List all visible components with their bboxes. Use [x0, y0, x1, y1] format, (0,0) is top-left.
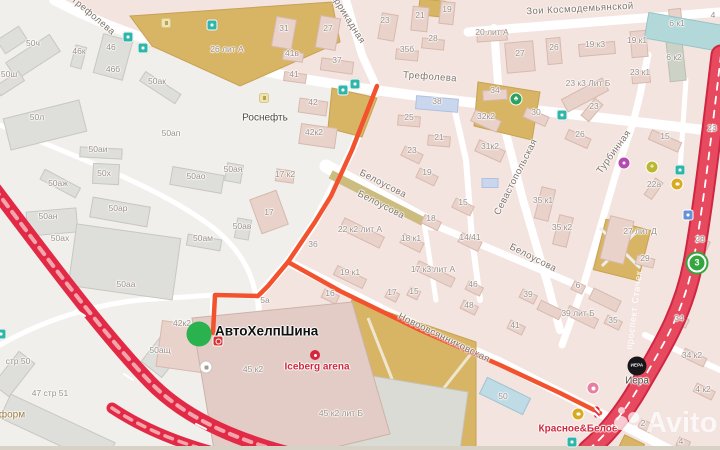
transit-stop-icon[interactable] [0, 329, 7, 340]
avito-logo-icon [612, 406, 642, 440]
transit-stop-icon[interactable] [138, 43, 149, 54]
park-tree-icon[interactable]: ♣ [510, 93, 523, 106]
poi-icons-layer: ♣+3ИЕРА [0, 0, 720, 450]
transit-stop-icon[interactable] [338, 85, 349, 96]
iera-logo-badge[interactable]: ИЕРА [628, 357, 647, 376]
fuel-station-icon[interactable] [259, 93, 269, 103]
store-cart-icon[interactable] [572, 408, 585, 421]
transit-stop-icon[interactable] [207, 20, 218, 31]
transit-stop-icon[interactable] [350, 79, 361, 90]
transit-route-badge[interactable]: 3 [688, 254, 707, 273]
transit-stop-icon[interactable] [123, 32, 134, 43]
transit-stop-icon[interactable] [675, 165, 686, 176]
transit-stop-icon[interactable] [567, 437, 578, 448]
origin-label: АвтоХелпШина [215, 324, 318, 339]
iceberg-arena-icon[interactable] [310, 350, 320, 360]
store-cart-icon[interactable] [671, 178, 684, 191]
route-end-marker[interactable] [595, 407, 600, 418]
avito-watermark: Avito [612, 406, 717, 440]
fuel-station-icon[interactable] [161, 18, 171, 28]
avito-watermark-text: Avito [646, 407, 717, 440]
map-canvas[interactable]: 50ч46к4646б50ак50ш50л26 лит А50ап50аи50х… [0, 0, 720, 450]
poi-pink-icon[interactable] [587, 382, 600, 395]
poi-white-icon[interactable] [200, 361, 213, 374]
pharmacy-cross-icon[interactable]: + [646, 161, 659, 174]
transit-stop-icon[interactable] [557, 110, 568, 121]
origin-marker[interactable] [187, 322, 212, 347]
poi-purple-icon[interactable] [618, 157, 631, 170]
transit-blue-icon[interactable] [683, 210, 694, 221]
